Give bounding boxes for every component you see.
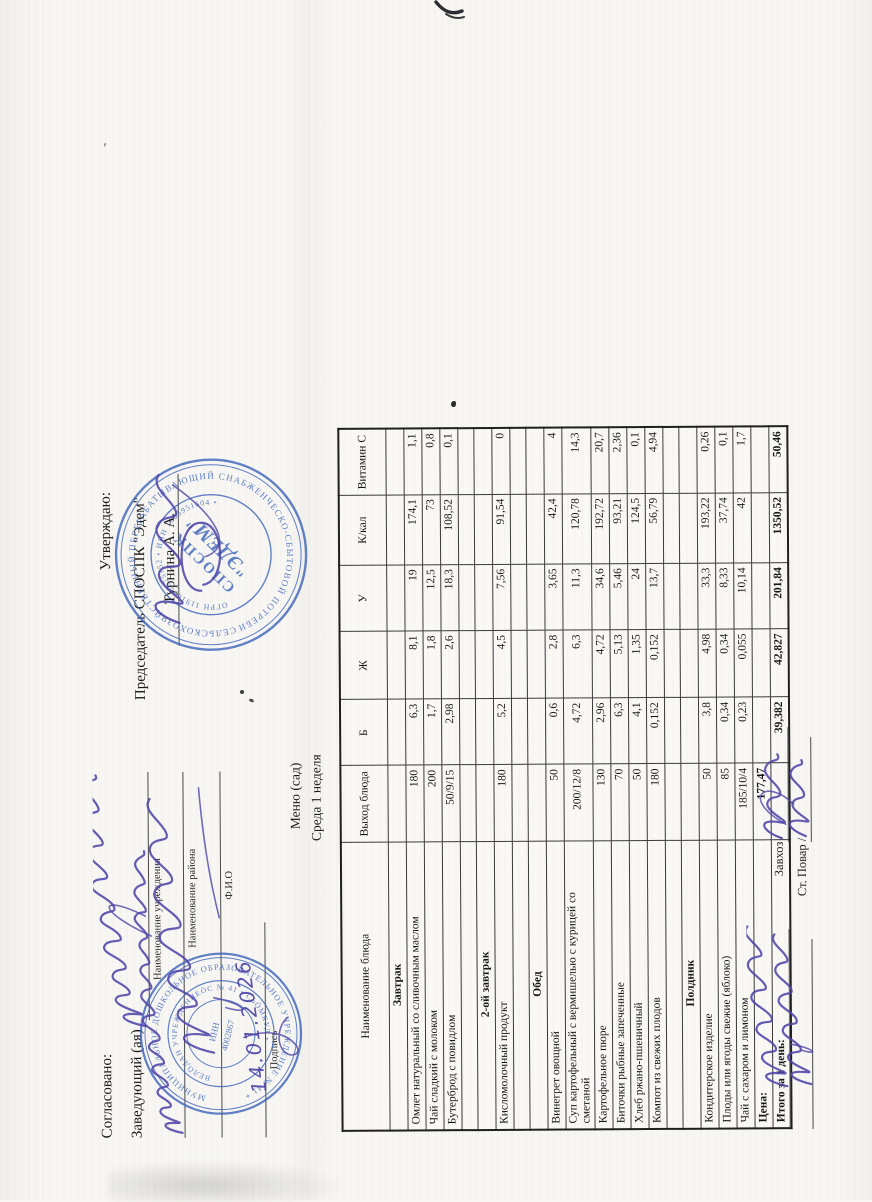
cell-b: 3,8: [698, 697, 716, 763]
cell-zh: 1,35: [628, 630, 646, 698]
agreed-label: Согласовано:: [99, 1054, 117, 1139]
cell-kcal: [386, 495, 404, 565]
zavhoz-label: Завхоз /: [772, 835, 787, 876]
cell-kcal: [663, 493, 679, 563]
cell-out: [665, 764, 681, 840]
cell-kcal: [751, 493, 769, 563]
cell-dish-name: Завтрак: [388, 842, 408, 1131]
column-header: Б: [340, 699, 388, 765]
cell-kcal: 42: [733, 493, 751, 563]
cell-zh: 42,827: [770, 629, 789, 697]
cell-out: 180: [406, 765, 424, 841]
cell-vitc: [510, 428, 526, 494]
cell-u: 201,84: [769, 563, 788, 629]
cell-u: [527, 564, 545, 630]
cell-vitc: 1,7: [733, 426, 751, 492]
scanned-page: { "document": { "orientation_note": "lan…: [0, 0, 872, 1200]
cell-b: 0,152: [646, 698, 664, 764]
cell-out: 180: [647, 764, 665, 840]
column-header: Наименование блюда: [341, 842, 390, 1131]
fio-caption: Ф.И.О: [224, 871, 235, 900]
cell-out: 130: [593, 764, 611, 840]
cell-vitc: 0,8: [422, 428, 440, 494]
cell-out: [512, 765, 528, 841]
cell-out: 70: [611, 764, 629, 840]
cell-kcal: 124,5: [627, 493, 645, 563]
cell-kcal: [458, 494, 474, 564]
cell-b: [752, 697, 770, 763]
cell-out: 50: [546, 765, 564, 841]
cell-kcal: 108,52: [440, 494, 458, 564]
cell-out: 200/12/8: [564, 764, 593, 840]
cell-kcal: 91,54: [492, 494, 510, 564]
cell-vitc: 20,7: [591, 427, 609, 493]
cell-zh: [475, 631, 493, 699]
cell-out: [476, 765, 494, 841]
cell-kcal: 93,21: [609, 493, 627, 563]
cell-u: 3,65: [545, 564, 563, 630]
cell-zh: 4,98: [698, 629, 716, 697]
cell-kcal: [510, 494, 526, 564]
cook-label: Ст. Повар /: [795, 838, 810, 896]
cell-u: [663, 563, 679, 629]
cell-out: 85: [717, 763, 735, 839]
cell-b: 0,34: [716, 697, 734, 763]
cell-out: [388, 765, 406, 841]
cell-dish-name: Картофельное пюре: [593, 840, 613, 1129]
menu-table: Наименование блюдаВыход блюдаБЖУК/калВит…: [337, 425, 792, 1132]
column-header: Витамин С: [338, 429, 386, 496]
cell-u: [751, 563, 769, 629]
cook-name-line: [811, 939, 813, 1129]
cell-kcal: 1350,52: [769, 492, 788, 562]
cell-b: 4,72: [563, 698, 592, 764]
cell-zh: [664, 629, 680, 697]
cell-dish-name: Суп картофельный с вермишелью с курицей …: [564, 841, 595, 1130]
cell-zh: 5,13: [610, 630, 628, 698]
edem-stamp: СЕЛЬСКОХОЗЯЙСТВЕННЫЙ ПЕРЕРАБАТЫВАЮЩИЙ СН…: [81, 425, 341, 685]
cell-zh: 2,6: [441, 631, 459, 699]
cell-dish-name: [460, 841, 478, 1130]
cell-out: 50: [699, 764, 717, 840]
cell-dish-name: [665, 840, 683, 1129]
cell-zh: 6,3: [563, 630, 592, 698]
cell-b: [387, 699, 405, 765]
cell-out: [528, 765, 546, 841]
cell-b: 2,98: [441, 699, 459, 765]
cell-vitc: [458, 428, 474, 494]
cell-u: 5,46: [609, 564, 627, 630]
cell-b: 39,382: [770, 697, 789, 763]
cell-zh: [387, 631, 405, 699]
cell-b: [511, 699, 527, 765]
cell-kcal: [474, 494, 492, 564]
cell-vitc: 2,36: [609, 427, 627, 493]
cell-kcal: [526, 494, 544, 564]
cell-dish-name: [512, 841, 530, 1130]
cell-dish-name: Чай сладкий с молоком: [424, 841, 444, 1130]
cell-u: 24: [627, 563, 645, 629]
cell-out: [460, 765, 476, 841]
stamp-center-line1: ИНН: [207, 1021, 221, 1043]
cell-b: 6,3: [610, 698, 628, 764]
cell-b: 1,7: [423, 699, 441, 765]
cell-b: 4,1: [628, 698, 646, 764]
column-header: К/кал: [339, 495, 387, 565]
cell-dish-name: Компот из свежих плодов: [647, 840, 667, 1129]
cell-zh: [680, 629, 698, 697]
cell-u: 18,3: [441, 565, 459, 631]
cell-zh: [527, 630, 545, 698]
cell-u: [387, 565, 405, 631]
cell-out: [771, 763, 790, 839]
cell-out: 177,47: [753, 763, 771, 839]
cell-vitc: 0,26: [697, 427, 715, 493]
cell-u: 34,6: [591, 564, 609, 630]
cell-b: [475, 699, 493, 765]
cell-u: 11,3: [563, 564, 592, 630]
menu-table-body: ЗавтракОмлет натуральный со сливочным ма…: [386, 426, 792, 1130]
cell-b: 0,6: [545, 698, 563, 764]
cell-dish-name: Полдник: [681, 840, 701, 1129]
cell-out: [681, 764, 699, 840]
cell-vitc: 0,1: [440, 428, 458, 494]
cell-vitc: [474, 428, 492, 494]
cell-zh: 8,1: [405, 631, 423, 699]
cell-vitc: 1,1: [404, 428, 422, 494]
cell-dish-name: Хлеб ржано-пшеничный: [629, 840, 649, 1129]
menu-table-head-row: Наименование блюдаВыход блюдаБЖУК/калВит…: [338, 429, 390, 1131]
cook-signature-line: [810, 737, 812, 842]
cell-zh: 0,055: [734, 629, 752, 697]
cell-u: 13,7: [645, 563, 663, 629]
cell-kcal: 42,4: [544, 494, 562, 564]
cell-zh: 0,34: [716, 629, 734, 697]
cell-kcal: 73: [422, 495, 440, 565]
cell-vitc: [663, 427, 679, 493]
stamp-ring-text: МУНИЦИПАЛЬНОЕ ДОШКОЛЬНОЕ ОБРАЗОВАТЕЛЬНОЕ…: [135, 948, 307, 1120]
menu-title: Меню (сад): [287, 763, 303, 830]
cell-out: 185/10/4: [735, 763, 753, 839]
cell-u: 33,3: [697, 563, 715, 629]
cell-u: 19: [405, 565, 423, 631]
cell-b: 2,96: [592, 698, 610, 764]
cell-u: 12,5: [423, 565, 441, 631]
cell-out: 50/9/15: [442, 765, 460, 841]
cell-vitc: [679, 427, 697, 493]
cell-zh: [511, 630, 527, 698]
cell-dish-name: Плоды или ягоды свежие (яблоко): [717, 840, 737, 1129]
cell-kcal: 192,72: [591, 494, 609, 564]
cell-dish-name: 2-ой завтрак: [476, 841, 496, 1130]
cell-kcal: [679, 493, 697, 563]
cell-zh: 4,5: [493, 630, 511, 698]
cell-u: [459, 565, 475, 631]
cell-zh: 4,72: [592, 630, 610, 698]
cell-u: 8,33: [715, 563, 733, 629]
cell-zh: [752, 629, 770, 697]
cell-u: [475, 564, 493, 630]
cell-vitc: [386, 429, 404, 495]
district-caption: Наименование района: [187, 849, 199, 948]
scanned-document: Согласовано: Заведующий (ая) Наименовани…: [0, 0, 872, 1199]
cell-vitc: 4,94: [645, 427, 663, 493]
cell-kcal: 193,22: [697, 493, 715, 563]
cell-kcal: 120,78: [562, 494, 591, 564]
table-row-item: Суп картофельный с вермишелью с курицей …: [562, 427, 595, 1129]
cell-dish-name: Кондитерское изделие: [699, 840, 719, 1129]
cell-zh: 1,8: [423, 631, 441, 699]
column-header: Ж: [340, 631, 388, 699]
cell-dish-name: Итого за 1 день:: [771, 839, 791, 1128]
cell-b: [664, 698, 680, 764]
cell-dish-name: Омлет натуральный со сливочным маслом: [406, 842, 426, 1131]
cell-vitc: 4: [544, 428, 562, 494]
cell-b: [459, 699, 475, 765]
cell-dish-name: Цена:: [753, 839, 773, 1128]
cell-zh: [459, 631, 475, 699]
column-header: У: [339, 565, 387, 631]
cell-out: 50: [629, 764, 647, 840]
cell-u: [511, 564, 527, 630]
cell-u: [679, 563, 697, 629]
cell-vitc: [526, 428, 544, 494]
cell-kcal: 56,79: [645, 493, 663, 563]
cell-b: 5,2: [493, 699, 511, 765]
cell-zh: 0,152: [646, 630, 664, 698]
cell-b: [527, 698, 545, 764]
cell-out: 200: [424, 765, 442, 841]
cell-b: 0,23: [734, 697, 752, 763]
cell-vitc: 0,1: [715, 427, 733, 493]
svg-text:МУНИЦИПАЛЬНОЕ ДОШКОЛЬНОЕ ОБРАЗ: МУНИЦИПАЛЬНОЕ ДОШКОЛЬНОЕ ОБРАЗОВАТЕЛЬНОЕ…: [135, 948, 307, 1120]
cell-dish-name: Биточки рыбные запеченные: [611, 840, 631, 1129]
cell-vitc: 0: [492, 428, 510, 494]
cell-kcal: 37,74: [715, 493, 733, 563]
cell-out: 180: [494, 765, 512, 841]
cell-dish-name: Бутерброд с повидлом: [442, 841, 462, 1130]
cell-vitc: [751, 426, 769, 492]
cell-u: 10,14: [733, 563, 751, 629]
menu-subtitle: Среда 1 неделя: [308, 754, 325, 841]
chairman-name: Турнина А. А.: [162, 513, 180, 604]
stamp-center-line2: 4002867: [219, 1018, 236, 1051]
cell-zh: 2,8: [545, 630, 563, 698]
cell-dish-name: Обед: [528, 841, 548, 1130]
cell-vitc: 14,3: [562, 427, 591, 493]
cell-dish-name: Винегрет овощной: [546, 841, 566, 1130]
cell-vitc: 0,1: [627, 427, 645, 493]
cell-dish-name: Чай с сахаром и лимоном: [735, 840, 755, 1129]
cell-dish-name: Кисломолочный продукт: [494, 841, 514, 1130]
cell-kcal: 174,1: [404, 495, 422, 565]
cell-b: [680, 698, 698, 764]
cell-u: 7,56: [493, 564, 511, 630]
table-row-total: Итого за 1 день:39,38242,827201,841350,5…: [769, 426, 792, 1128]
cell-b: 6,3: [405, 699, 423, 765]
column-header: Выход блюда: [340, 766, 388, 842]
cell-vitc: 50,46: [769, 426, 788, 492]
